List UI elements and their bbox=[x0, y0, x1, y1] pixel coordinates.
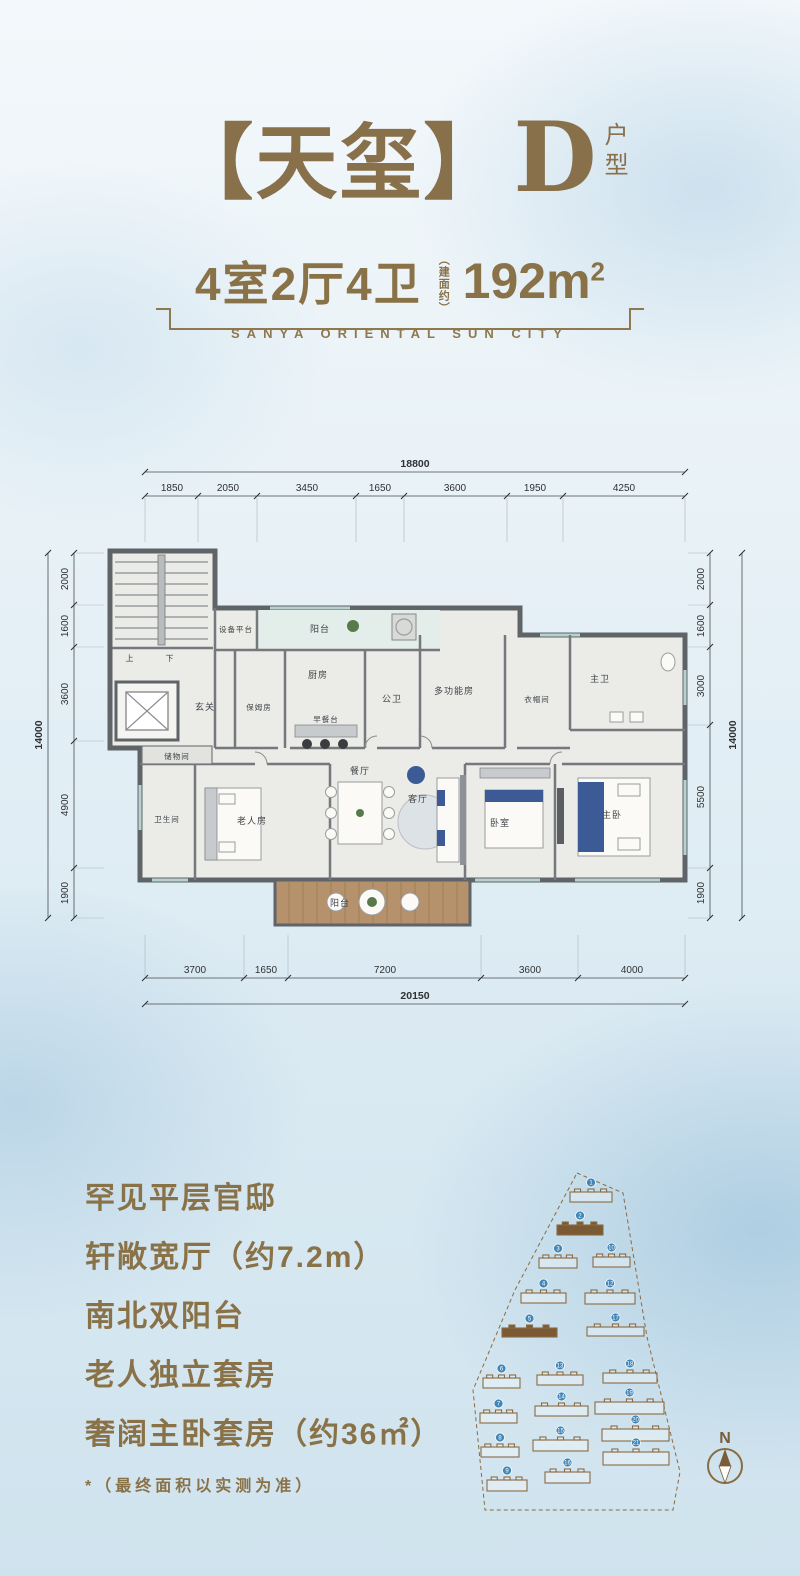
site-buildings: 1231041251761318714198152091621 bbox=[480, 1178, 669, 1491]
dim-top-4: 3600 bbox=[444, 483, 467, 494]
site-building-13: 13 bbox=[537, 1361, 583, 1385]
title-unit-letter: D bbox=[513, 101, 596, 214]
site-building-4: 4 bbox=[521, 1279, 566, 1303]
spec-area-sup: 2 bbox=[591, 256, 605, 286]
dim-top-1: 2050 bbox=[217, 483, 240, 494]
floor-plan: 18800 1850 2050 3450 1650 3600 1950 4250… bbox=[20, 430, 780, 1040]
site-building-12: 12 bbox=[585, 1279, 635, 1304]
dim-top-3: 1650 bbox=[369, 483, 392, 494]
feature-item: 轩敞宽厅（约7.2m） bbox=[85, 1241, 442, 1275]
site-building-20: 20 bbox=[602, 1415, 669, 1441]
svg-text:21: 21 bbox=[633, 1441, 640, 1447]
breakfast-bar bbox=[295, 725, 357, 737]
room-label-bedroom: 卧室 bbox=[490, 817, 510, 828]
room-label-elder-room: 老人房 bbox=[237, 815, 267, 826]
balcony-plant bbox=[347, 620, 359, 632]
site-building-1: 1 bbox=[570, 1178, 612, 1202]
room-label-cloakroom: 衣帽间 bbox=[524, 694, 550, 704]
dim-right-2: 3000 bbox=[696, 674, 707, 697]
room-label-breakfast: 早餐台 bbox=[313, 714, 339, 724]
compass-needle-south bbox=[719, 1466, 731, 1483]
dining-set bbox=[326, 782, 395, 844]
dim-right-4: 1900 bbox=[696, 881, 707, 904]
dim-left-1: 1600 bbox=[60, 614, 71, 637]
dim-right-0: 2000 bbox=[696, 567, 707, 590]
page-title: 【天玺】D户型 bbox=[0, 96, 800, 215]
dim-bottom-3: 3600 bbox=[519, 965, 542, 976]
subtitle-en: SANYA ORIENTAL SUN CITY bbox=[0, 326, 800, 341]
elevator bbox=[116, 682, 178, 740]
spec-bracket: 4室2厅4卫 （建面约） 192m2 bbox=[169, 248, 631, 330]
dim-left-3: 4900 bbox=[60, 793, 71, 816]
site-building-9: 9 bbox=[487, 1466, 527, 1491]
spec-row: 4室2厅4卫 （建面约） 192m2 bbox=[0, 248, 800, 330]
dim-top-total: 18800 bbox=[400, 458, 429, 470]
title-suffix-1: 户 bbox=[605, 121, 629, 151]
dim-bottom-0: 3700 bbox=[184, 965, 207, 976]
title-suffix-2: 型 bbox=[605, 151, 629, 181]
site-building-7: 7 bbox=[480, 1399, 517, 1423]
deck-chair-right bbox=[401, 893, 419, 911]
dim-top-2: 3450 bbox=[296, 483, 319, 494]
room-label-storage: 储物间 bbox=[164, 751, 190, 761]
svg-text:10: 10 bbox=[608, 1246, 615, 1252]
room-label-equipment: 设备平台 bbox=[219, 624, 253, 634]
site-building-16: 16 bbox=[545, 1458, 590, 1483]
room-label-foyer: 玄关 bbox=[195, 701, 215, 712]
site-building-10: 10 bbox=[593, 1243, 630, 1267]
feature-item: 南北双阳台 bbox=[85, 1300, 442, 1334]
room-label-multifunction: 多功能房 bbox=[434, 685, 474, 696]
site-building-6: 6 bbox=[483, 1364, 520, 1388]
dim-bottom-4: 4000 bbox=[621, 965, 644, 976]
room-label-nanny: 保姆房 bbox=[246, 702, 272, 712]
area-disclaimer: *（最终面积以实测为准） bbox=[85, 1472, 315, 1496]
dim-right-ticks bbox=[688, 550, 713, 921]
svg-text:12: 12 bbox=[607, 1282, 614, 1288]
dim-right-3: 5500 bbox=[696, 785, 707, 808]
room-label-master-bath: 主卫 bbox=[590, 673, 610, 684]
site-building-19: 19 bbox=[595, 1388, 664, 1414]
dim-top-ticks bbox=[142, 493, 688, 542]
room-label-living: 客厅 bbox=[408, 793, 428, 804]
site-building-18: 18 bbox=[603, 1359, 657, 1383]
site-plan: 1231041251761318714198152091621 N bbox=[460, 1150, 790, 1550]
title-suffix: 户型 bbox=[605, 121, 629, 181]
feature-item: 奢阔主卧套房（约36㎡） bbox=[85, 1418, 442, 1452]
room-label-south-balcony: 阳台 bbox=[330, 897, 350, 908]
dim-left-0: 2000 bbox=[60, 567, 71, 590]
site-building-14: 14 bbox=[535, 1392, 588, 1416]
dim-bottom-total: 20150 bbox=[400, 990, 429, 1002]
dim-left-4: 1900 bbox=[60, 881, 71, 904]
room-label-kitchen: 厨房 bbox=[308, 669, 328, 680]
svg-text:15: 15 bbox=[557, 1429, 564, 1435]
svg-text:20: 20 bbox=[632, 1418, 639, 1424]
deck-plant bbox=[367, 897, 377, 907]
room-label-bathroom: 卫生间 bbox=[154, 814, 180, 824]
svg-text:17: 17 bbox=[612, 1316, 619, 1322]
dim-top-6: 4250 bbox=[613, 483, 636, 494]
site-building-17: 17 bbox=[587, 1313, 644, 1336]
dim-bottom-ticks bbox=[142, 935, 688, 981]
site-building-15: 15 bbox=[533, 1426, 588, 1451]
svg-text:16: 16 bbox=[564, 1461, 571, 1467]
dim-left-total: 14000 bbox=[33, 720, 45, 749]
dim-left-ticks bbox=[71, 550, 104, 921]
svg-text:14: 14 bbox=[558, 1395, 565, 1401]
dim-right-1: 1600 bbox=[696, 614, 707, 637]
feature-item: 老人独立套房 bbox=[85, 1359, 442, 1393]
stairs-down-label: 下 bbox=[166, 654, 175, 663]
ac-unit bbox=[392, 614, 416, 640]
compass-n-label: N bbox=[719, 1430, 731, 1447]
compass: N bbox=[708, 1430, 742, 1483]
svg-text:19: 19 bbox=[626, 1391, 633, 1397]
site-building-2: 2 bbox=[557, 1211, 603, 1235]
feature-list: 罕见平层官邸 轩敞宽厅（约7.2m） 南北双阳台 老人独立套房 奢阔主卧套房（约… bbox=[85, 1182, 442, 1477]
svg-text:18: 18 bbox=[627, 1362, 634, 1368]
dim-bottom-2: 7200 bbox=[374, 965, 397, 976]
title-cn: 【天玺】 bbox=[171, 115, 507, 211]
dim-bottom-1: 1650 bbox=[255, 965, 278, 976]
site-building-8: 8 bbox=[481, 1433, 519, 1457]
site-building-5: 5 bbox=[502, 1314, 557, 1337]
feature-item: 罕见平层官邸 bbox=[85, 1182, 442, 1216]
room-label-guest-bath: 公卫 bbox=[382, 694, 402, 704]
svg-text:13: 13 bbox=[557, 1364, 564, 1370]
room-label-dining: 餐厅 bbox=[350, 765, 370, 776]
dim-right-total: 14000 bbox=[727, 720, 739, 749]
compass-needle-north bbox=[719, 1449, 731, 1466]
spec-area-note: （建面约） bbox=[436, 254, 450, 308]
room-label-north-balcony: 阳台 bbox=[310, 623, 330, 634]
room-label-master-bedroom: 主卧 bbox=[602, 809, 622, 820]
dim-top-0: 1850 bbox=[161, 483, 184, 494]
stairs-up-label: 上 bbox=[126, 654, 135, 663]
poster-page: 【天玺】D户型 4室2厅4卫 （建面约） 192m2 SANYA ORIENTA… bbox=[0, 0, 800, 1576]
dim-top-5: 1950 bbox=[524, 483, 547, 494]
spec-area-value: 192m2 bbox=[463, 253, 605, 309]
site-building-3: 3 bbox=[539, 1244, 577, 1268]
site-building-21: 21 bbox=[603, 1438, 669, 1465]
dim-left-2: 3600 bbox=[60, 682, 71, 705]
spec-rooms: 4室2厅4卫 bbox=[195, 258, 422, 310]
